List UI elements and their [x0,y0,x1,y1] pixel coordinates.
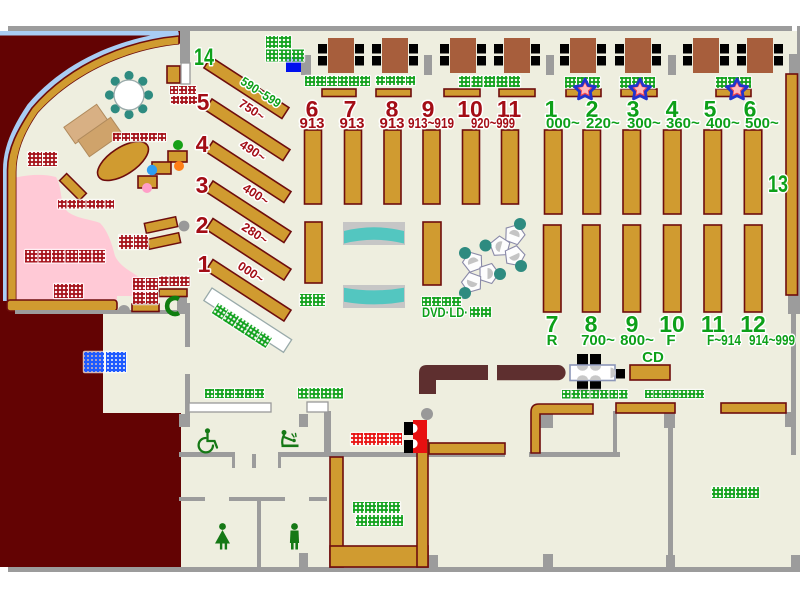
svg-text:300~: 300~ [627,115,661,132]
svg-text:000~: 000~ [546,115,580,132]
svg-text:13: 13 [768,171,788,198]
svg-text:R: R [547,332,558,349]
svg-text:500~: 500~ [745,115,779,132]
svg-text:CD: CD [642,349,664,366]
svg-text:913: 913 [379,115,404,132]
svg-text:14: 14 [194,44,214,71]
svg-text:700~: 700~ [581,332,615,349]
svg-text:3: 3 [196,172,209,198]
svg-text:1: 1 [198,251,211,277]
svg-text:F~914: F~914 [707,332,742,349]
svg-text:4: 4 [196,131,209,157]
svg-text:800~: 800~ [620,332,654,349]
svg-text:220~: 220~ [586,115,620,132]
svg-text:360~: 360~ [666,115,700,132]
svg-text:400~: 400~ [706,115,740,132]
svg-text:913~919: 913~919 [408,115,454,132]
svg-text:913: 913 [299,115,324,132]
svg-text:913: 913 [339,115,364,132]
svg-text:F: F [666,332,675,349]
svg-text:920~999: 920~999 [471,115,515,132]
svg-text:914~999: 914~999 [749,332,795,349]
svg-text:5: 5 [197,89,210,115]
svg-text:2: 2 [196,212,209,238]
